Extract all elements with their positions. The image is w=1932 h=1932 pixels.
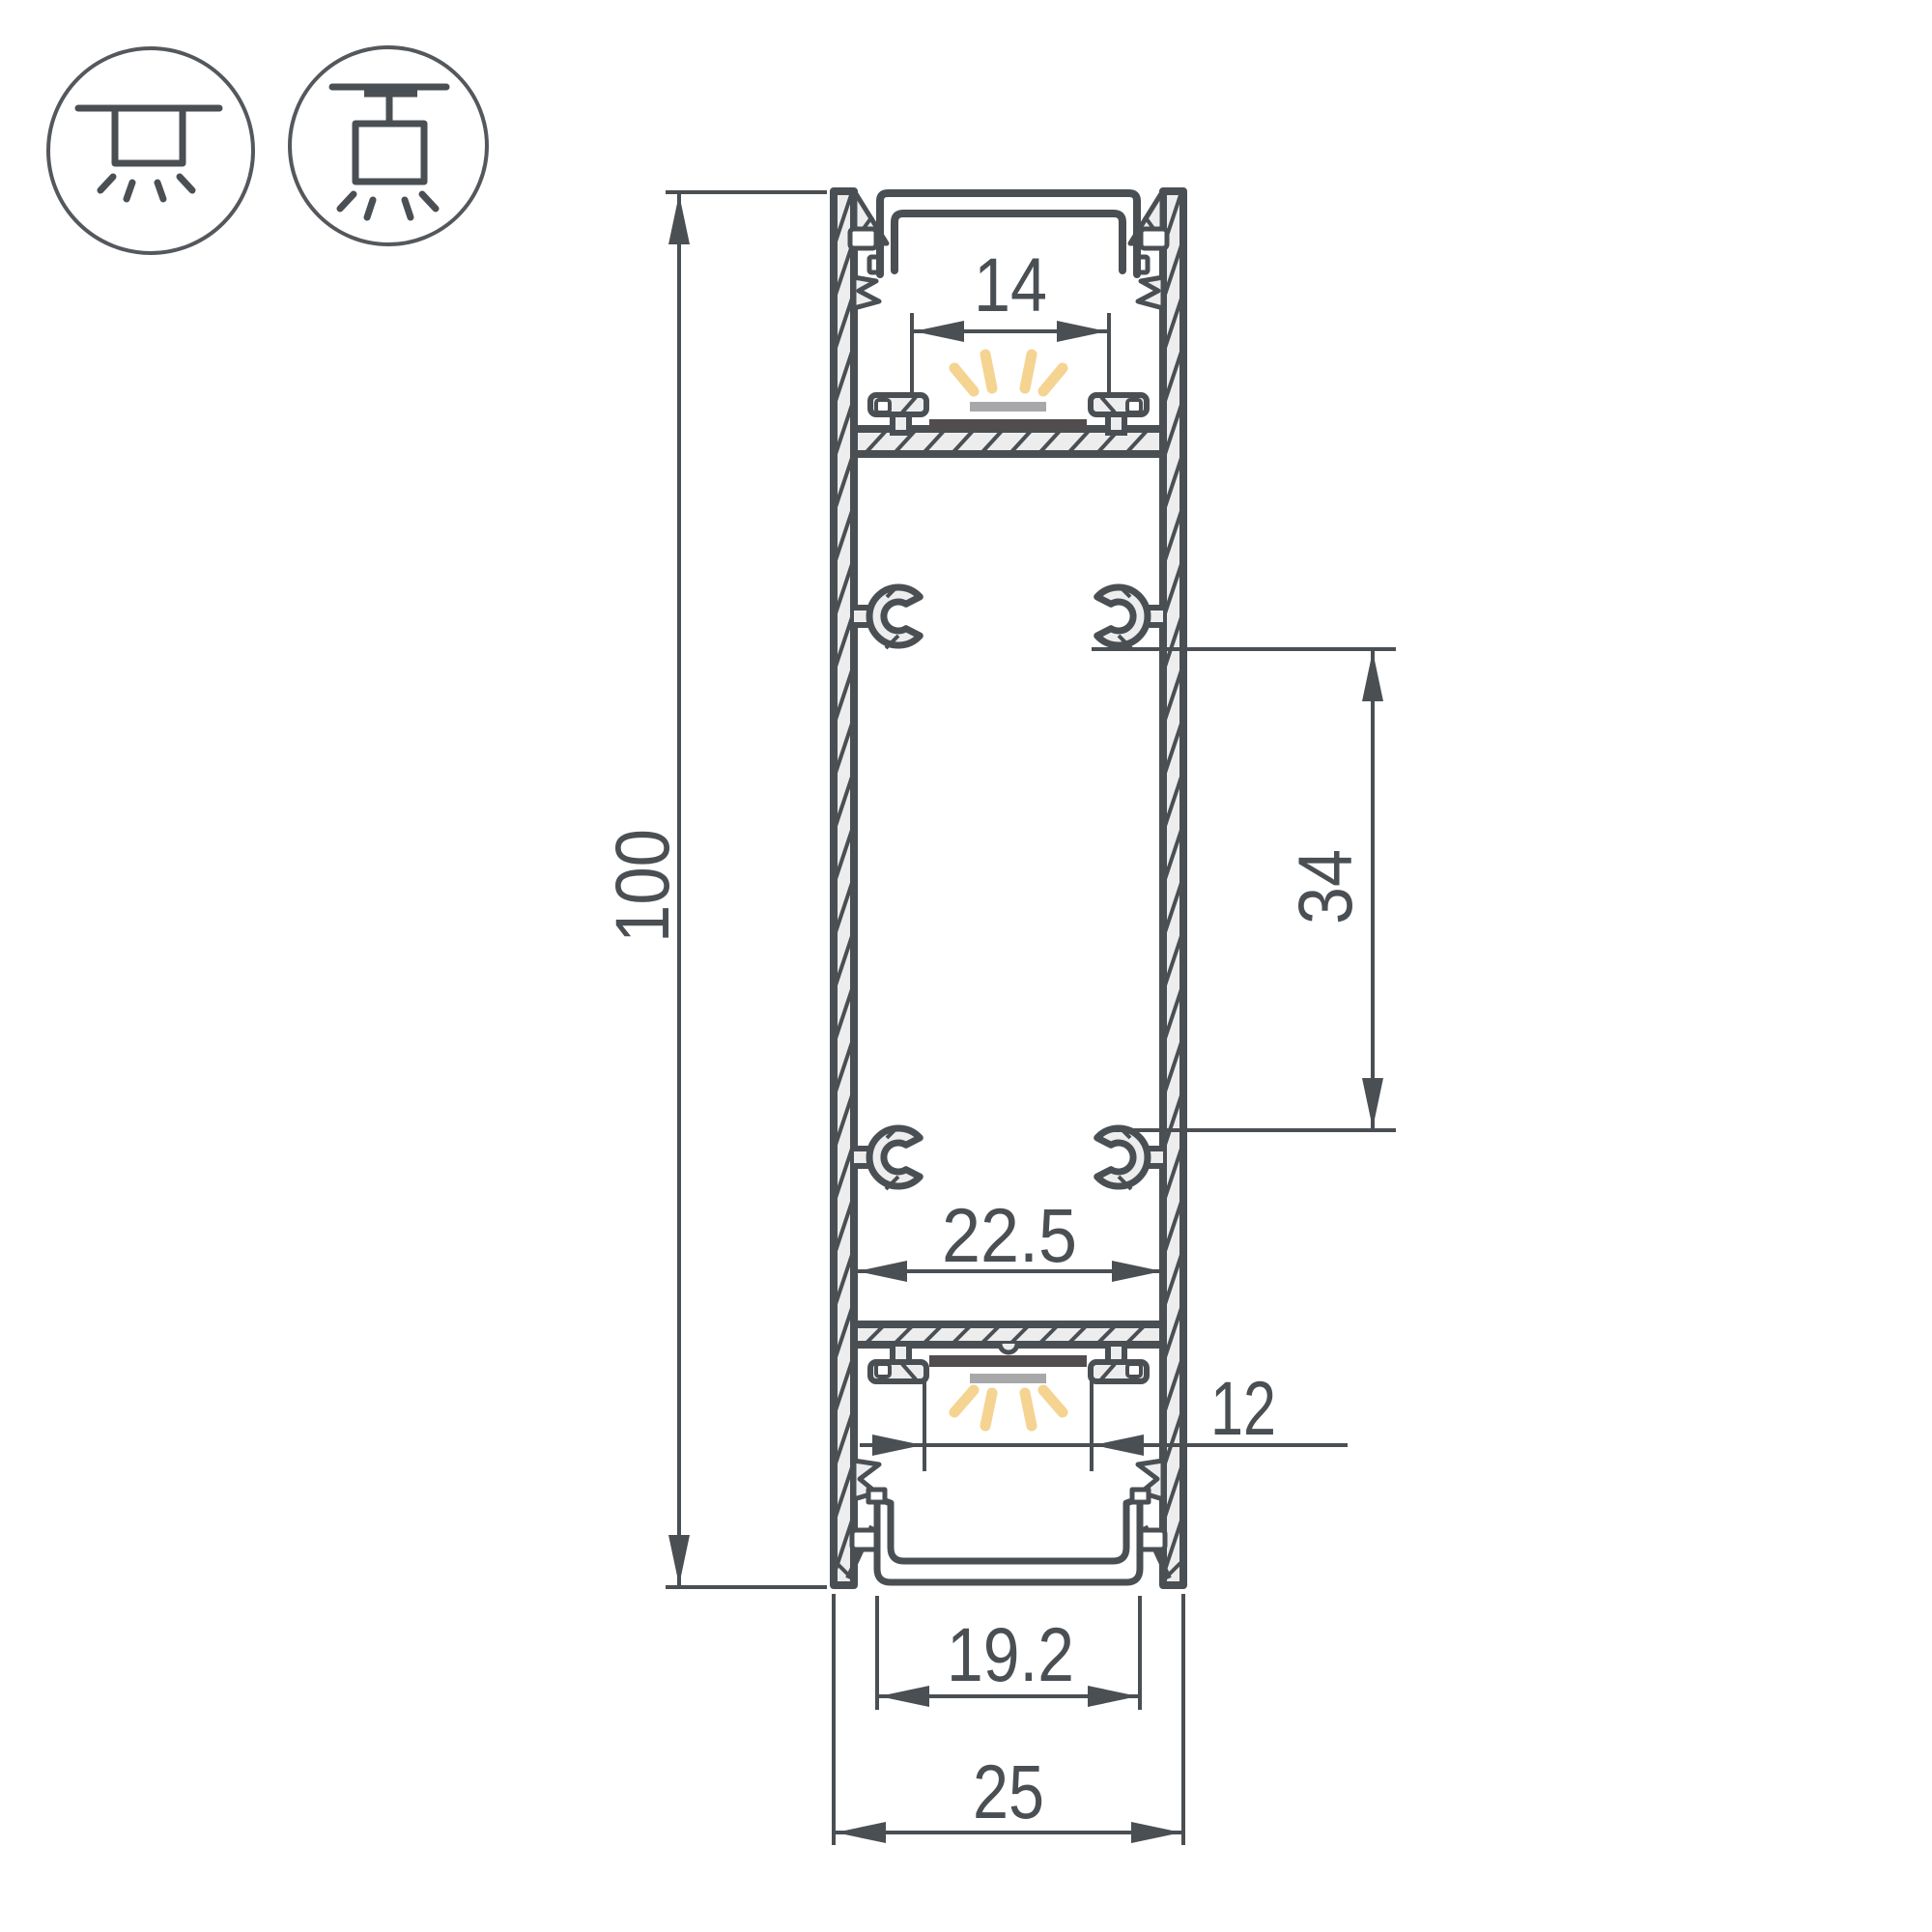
svg-text:14: 14 (974, 241, 1047, 327)
svg-text:12: 12 (1210, 1365, 1276, 1451)
svg-text:34: 34 (1282, 849, 1368, 924)
svg-text:100: 100 (599, 829, 685, 943)
svg-text:25: 25 (973, 1748, 1044, 1834)
svg-text:22.5: 22.5 (942, 1192, 1077, 1278)
svg-text:19.2: 19.2 (947, 1611, 1074, 1697)
